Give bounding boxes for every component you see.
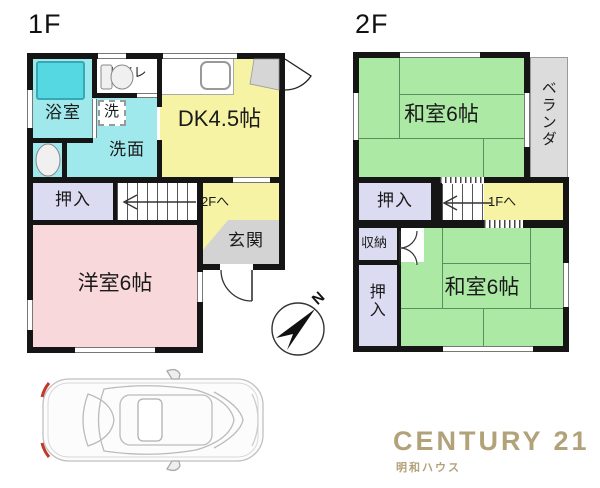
wall bbox=[431, 183, 442, 222]
kitchen-sink-icon bbox=[200, 61, 231, 90]
wall bbox=[62, 143, 67, 183]
tatami-line bbox=[359, 138, 524, 139]
century21-logo: CENTURY 21 bbox=[393, 426, 590, 457]
sliding-opening bbox=[484, 220, 523, 228]
wall bbox=[92, 53, 97, 98]
window bbox=[163, 53, 237, 59]
tatami-line bbox=[483, 308, 484, 346]
window bbox=[27, 300, 33, 330]
stairs-2f-label: 1Fへ bbox=[488, 195, 516, 209]
bath-label: 浴室 bbox=[33, 104, 93, 122]
tatami-line bbox=[483, 138, 484, 177]
japanese-room-north-label: 和室6帖 bbox=[359, 104, 524, 126]
sliding-opening bbox=[440, 177, 484, 183]
bathtub-icon bbox=[36, 61, 85, 100]
dk-label: DK4.5帖 bbox=[160, 107, 279, 130]
window bbox=[443, 346, 533, 352]
window bbox=[98, 53, 126, 59]
wall bbox=[353, 220, 484, 228]
stairs-2f bbox=[442, 184, 484, 220]
entrance-label: 玄関 bbox=[228, 232, 264, 250]
wall bbox=[279, 53, 285, 270]
wall bbox=[523, 220, 569, 228]
closet-2f-south-label: 押入 bbox=[366, 283, 383, 319]
closet-door-area bbox=[399, 228, 424, 262]
window bbox=[75, 347, 155, 353]
closet-1f-label: 押入 bbox=[33, 191, 113, 209]
wall bbox=[27, 138, 93, 143]
veranda-label: ベランダ bbox=[540, 80, 556, 148]
floor1-label: 1F bbox=[28, 10, 62, 38]
window bbox=[563, 263, 569, 307]
window bbox=[197, 272, 203, 302]
compass-n: N bbox=[309, 289, 328, 309]
storage-label: 収納 bbox=[361, 236, 387, 250]
car-top-view bbox=[42, 370, 263, 471]
window bbox=[524, 93, 530, 147]
laundry-label: 洗 bbox=[104, 104, 119, 120]
toilet-door bbox=[137, 93, 157, 98]
stairs-1f-label: 2Fへ bbox=[201, 195, 229, 209]
toilet-label: トイレ bbox=[99, 66, 155, 80]
stairs-1f bbox=[117, 183, 197, 220]
washroom-label: 洗面 bbox=[97, 141, 157, 159]
floorplan-canvas: 1F 浴室 トイレ 洗 洗面 DK4.5帖 押入 2Fへ 玄関 洋室6帖 2F bbox=[0, 0, 600, 488]
western-room-label: 洋室6帖 bbox=[33, 273, 197, 295]
wall bbox=[27, 220, 203, 225]
tatami-line bbox=[401, 308, 563, 309]
floor2-label: 2F bbox=[355, 10, 389, 38]
opening bbox=[233, 177, 270, 183]
wall bbox=[359, 260, 401, 265]
wall bbox=[27, 53, 285, 59]
closet-2f-north-label: 押入 bbox=[359, 192, 431, 210]
wall bbox=[157, 140, 162, 183]
compass-icon: N bbox=[272, 289, 328, 355]
wall bbox=[113, 183, 117, 220]
wall bbox=[97, 93, 137, 98]
front-door bbox=[221, 270, 252, 301]
front-door-opening bbox=[220, 264, 253, 270]
window bbox=[400, 52, 480, 58]
tatami-line bbox=[399, 94, 524, 95]
japanese-room-south-label: 和室6帖 bbox=[401, 277, 563, 299]
tatami-line bbox=[442, 263, 530, 264]
wall bbox=[157, 53, 162, 107]
office-name: 明和ハウス bbox=[396, 459, 461, 475]
